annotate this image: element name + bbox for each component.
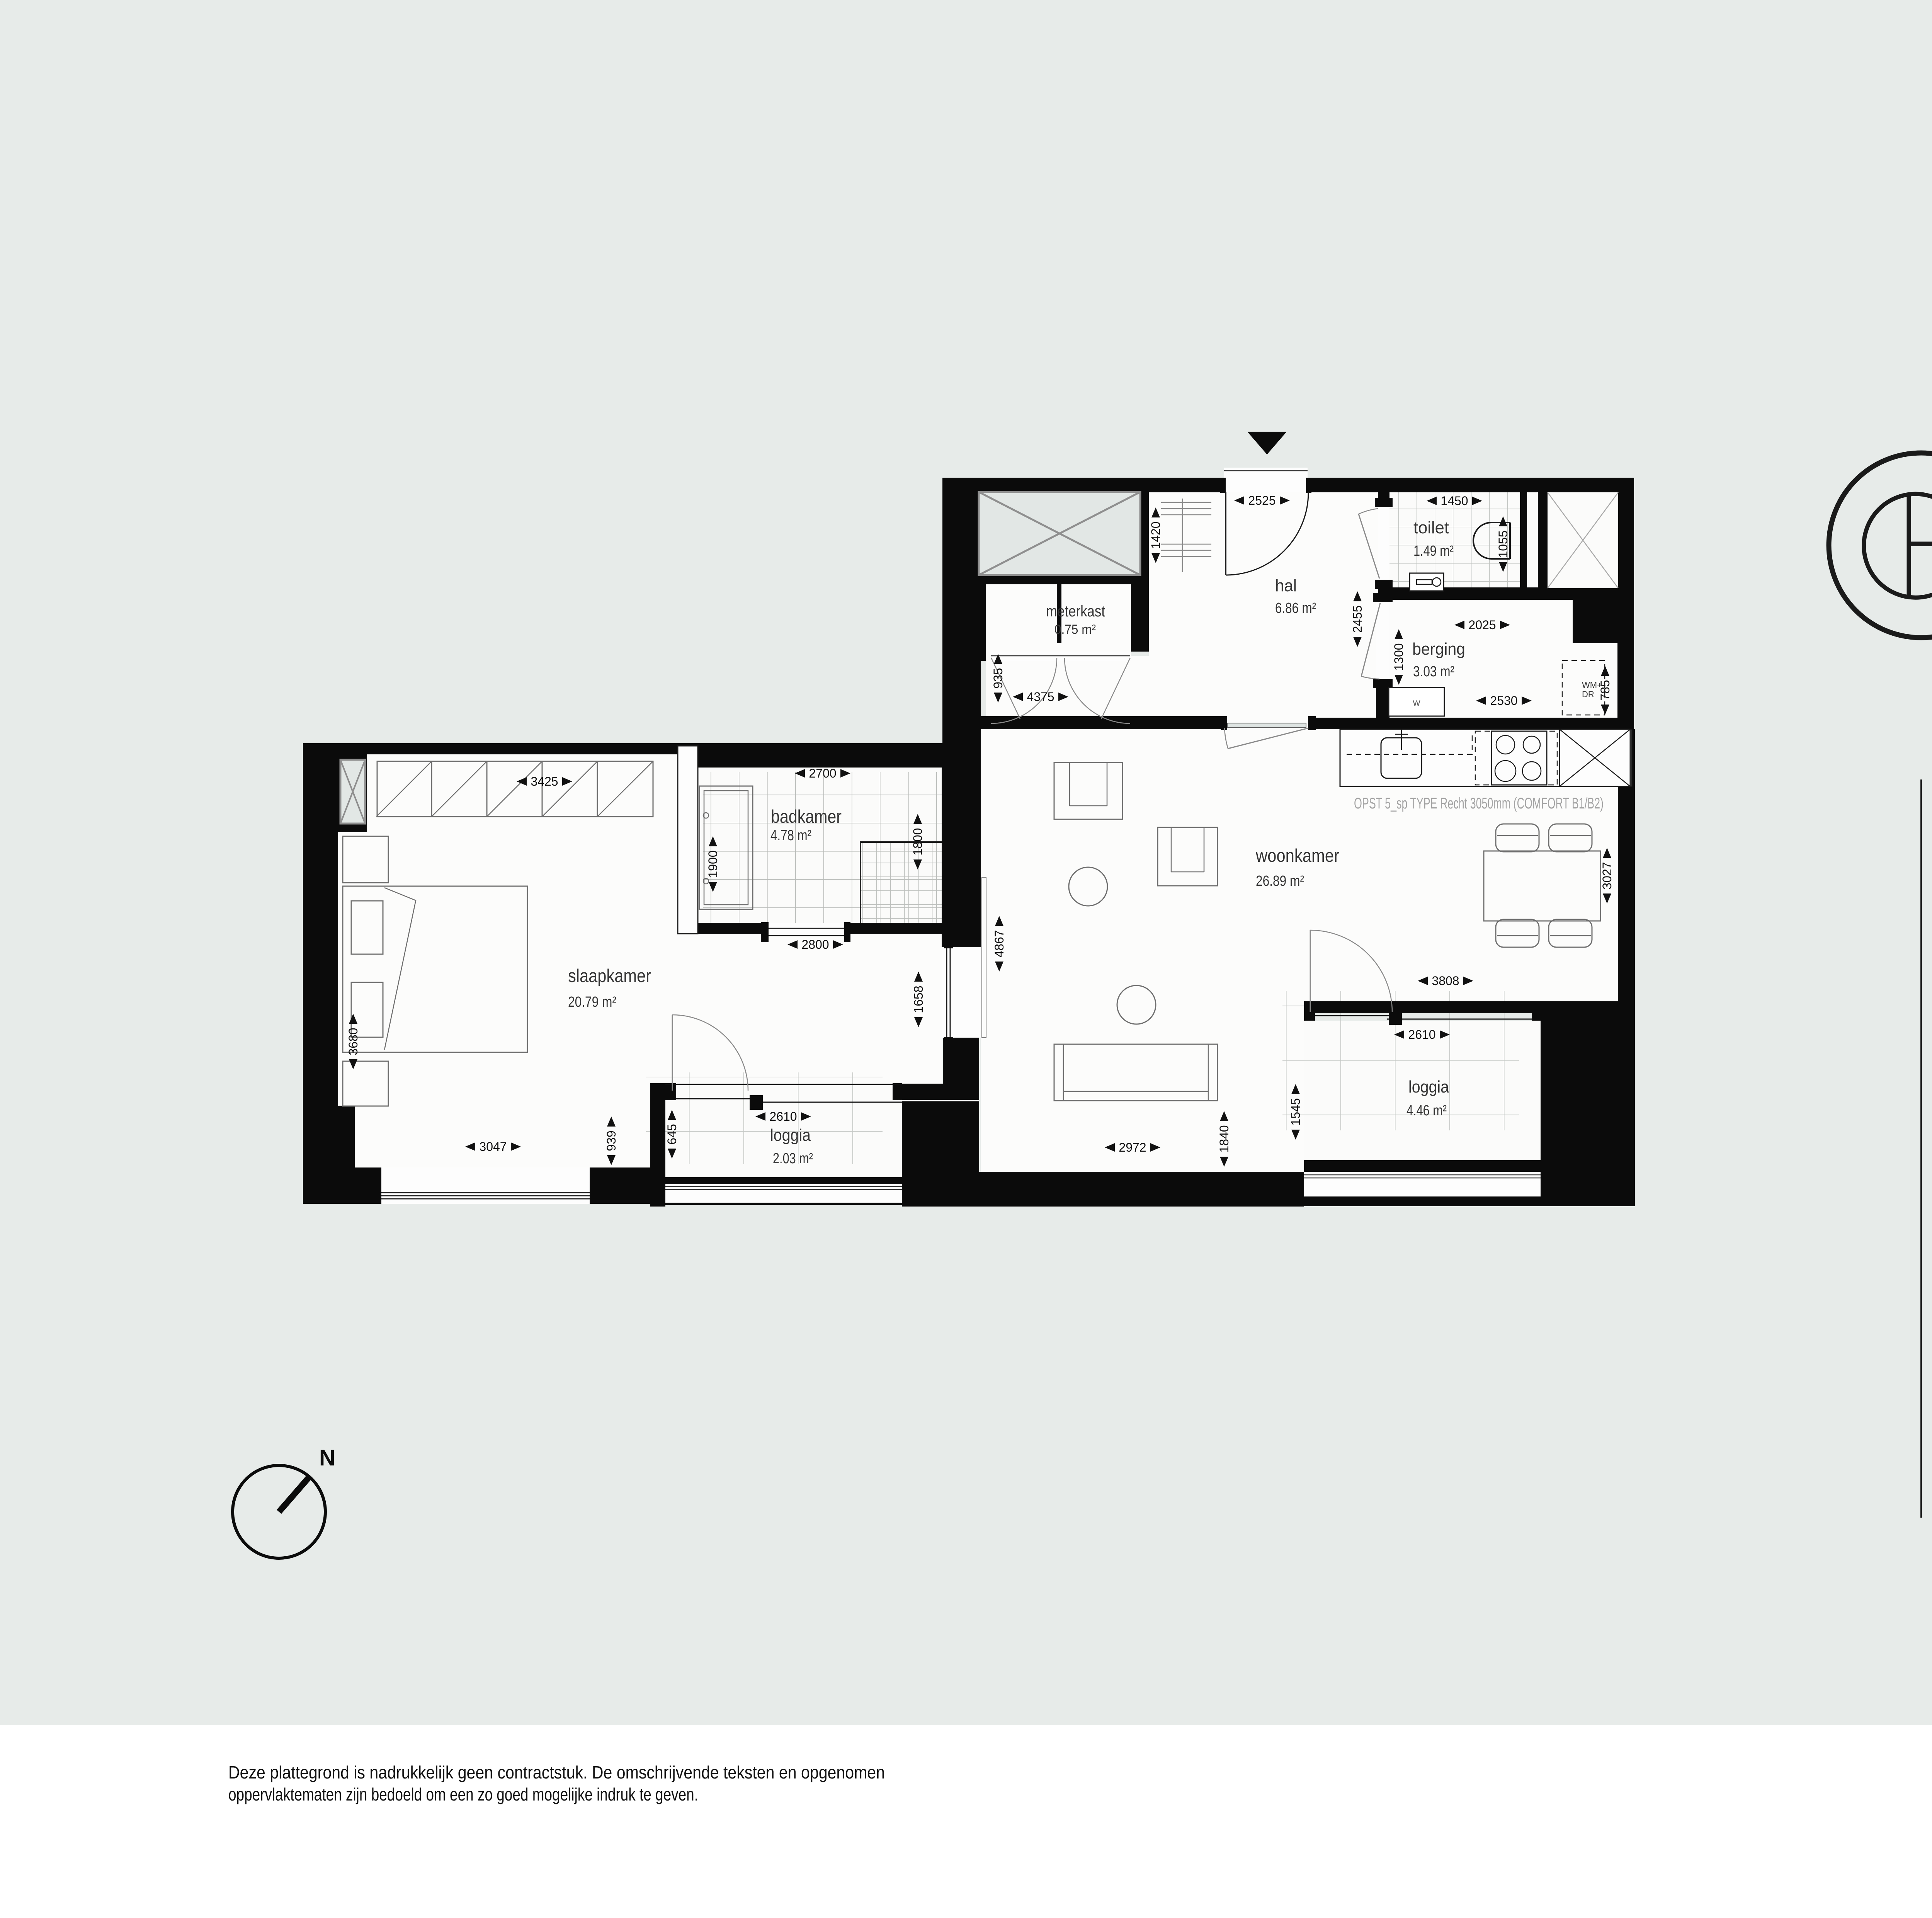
svg-text:hal: hal	[1275, 576, 1297, 595]
svg-text:785: 785	[1598, 680, 1612, 700]
svg-text:26.89 m²: 26.89 m²	[1256, 873, 1304, 889]
svg-text:1450: 1450	[1440, 494, 1468, 508]
svg-text:3.03 m²: 3.03 m²	[1413, 664, 1454, 680]
svg-text:meterkast: meterkast	[1046, 603, 1105, 620]
svg-text:1900: 1900	[706, 850, 720, 878]
svg-text:4.46 m²: 4.46 m²	[1406, 1103, 1447, 1119]
svg-text:4.78 m²: 4.78 m²	[770, 827, 811, 844]
svg-text:slaapkamer: slaapkamer	[568, 965, 651, 986]
svg-text:3425: 3425	[531, 774, 558, 788]
svg-text:1545: 1545	[1289, 1098, 1303, 1125]
svg-text:4375: 4375	[1027, 690, 1054, 704]
svg-text:2025: 2025	[1468, 618, 1496, 632]
svg-text:3027: 3027	[1600, 862, 1614, 889]
svg-text:645: 645	[665, 1124, 679, 1144]
svg-text:N: N	[319, 1445, 335, 1470]
svg-text:0.75 m²: 0.75 m²	[1054, 622, 1096, 637]
svg-text:berging: berging	[1412, 640, 1465, 659]
svg-text:3047: 3047	[479, 1140, 507, 1154]
svg-text:20.79 m²: 20.79 m²	[568, 994, 616, 1010]
svg-text:2455: 2455	[1350, 605, 1364, 633]
svg-text:2530: 2530	[1490, 694, 1517, 708]
svg-text:woonkamer: woonkamer	[1255, 845, 1339, 866]
svg-text:2972: 2972	[1119, 1140, 1146, 1154]
svg-text:4867: 4867	[992, 930, 1006, 957]
svg-text:2610: 2610	[769, 1110, 797, 1123]
svg-text:badkamer: badkamer	[771, 806, 842, 827]
svg-text:1420: 1420	[1149, 521, 1163, 549]
svg-text:toilet: toilet	[1413, 518, 1449, 537]
svg-text:Deze plattegrond is nadrukkeli: Deze plattegrond is nadrukkelijk geen co…	[228, 1762, 885, 1782]
svg-text:oppervlaktematen zijn bedoeld: oppervlaktematen zijn bedoeld om een zo …	[228, 1784, 698, 1804]
svg-text:1658: 1658	[912, 985, 925, 1013]
svg-text:1055: 1055	[1496, 530, 1510, 558]
svg-text:3808: 3808	[1432, 974, 1459, 988]
svg-text:1300: 1300	[1392, 643, 1406, 671]
svg-text:1840: 1840	[1217, 1125, 1231, 1152]
svg-text:1.49 m²: 1.49 m²	[1413, 543, 1454, 559]
svg-text:935: 935	[991, 668, 1005, 688]
svg-text:OPST 5_sp TYPE Recht 3050mm (C: OPST 5_sp TYPE Recht 3050mm (COMFORT B1/…	[1354, 795, 1604, 812]
svg-text:loggia: loggia	[1408, 1077, 1449, 1096]
svg-text:3680: 3680	[346, 1028, 360, 1055]
svg-text:DR: DR	[1582, 689, 1594, 699]
svg-text:2525: 2525	[1248, 494, 1276, 507]
svg-text:w: w	[1413, 696, 1420, 708]
svg-text:2.03 m²: 2.03 m²	[773, 1150, 813, 1167]
svg-text:939: 939	[604, 1130, 618, 1151]
svg-text:2700: 2700	[809, 766, 836, 780]
svg-text:loggia: loggia	[770, 1126, 811, 1145]
svg-text:2800: 2800	[801, 938, 829, 951]
svg-text:6.86 m²: 6.86 m²	[1275, 600, 1316, 616]
svg-text:1800: 1800	[911, 828, 925, 855]
svg-text:2610: 2610	[1408, 1028, 1435, 1042]
